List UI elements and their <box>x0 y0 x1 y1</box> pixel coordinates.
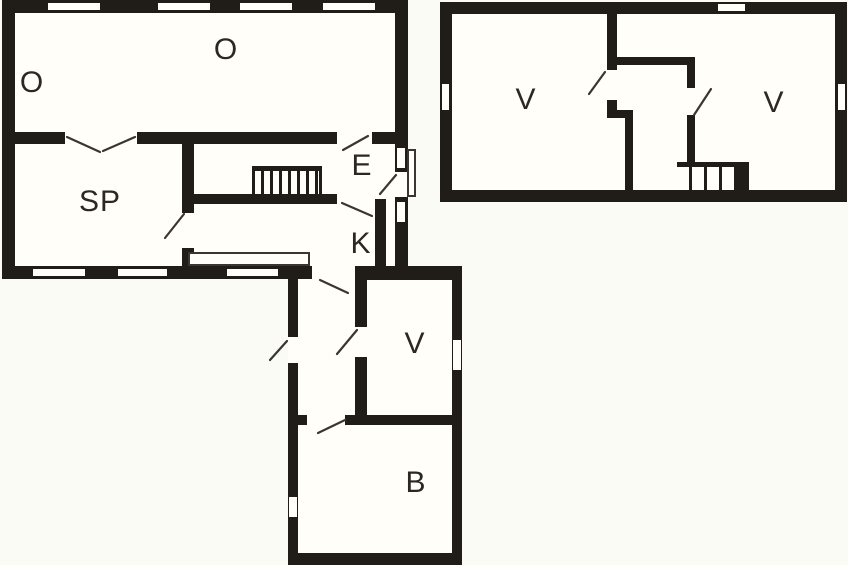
room-label-e: E <box>351 151 372 181</box>
door-opening <box>312 266 355 279</box>
wall <box>440 2 847 14</box>
wall <box>375 199 386 266</box>
wall <box>288 363 298 553</box>
wall <box>345 415 452 425</box>
stairs <box>677 162 737 190</box>
window <box>158 3 210 10</box>
wall <box>687 115 695 162</box>
wall <box>737 162 749 190</box>
wall <box>194 194 337 204</box>
wall <box>2 0 15 279</box>
window <box>323 3 375 10</box>
wall <box>607 110 633 118</box>
upper-floor-interior <box>440 2 847 202</box>
door-opening <box>288 337 298 363</box>
wall <box>288 266 298 337</box>
window <box>838 84 845 110</box>
wall <box>355 266 462 280</box>
room-label-v-ext: V <box>404 329 425 359</box>
kitchen-counter <box>188 252 310 266</box>
wall <box>15 132 65 144</box>
window <box>397 148 405 168</box>
window <box>48 3 100 10</box>
floor-plan-canvas: O O SP E K V B V V <box>0 0 848 565</box>
window <box>453 340 461 370</box>
window <box>397 202 405 222</box>
window <box>227 269 278 276</box>
room-label-sp: SP <box>79 187 121 217</box>
wall <box>137 132 337 144</box>
wall <box>440 190 847 202</box>
wall <box>355 280 367 327</box>
entry-stoop <box>407 149 416 197</box>
room-label-v-upper-left: V <box>515 85 536 115</box>
stairs <box>252 166 322 194</box>
room-label-v-upper-right: V <box>763 88 784 118</box>
window <box>442 84 449 110</box>
room-label-b: B <box>405 468 426 498</box>
room-label-o-left: O <box>20 68 44 98</box>
wall <box>617 57 695 65</box>
wall <box>452 266 462 553</box>
window <box>289 497 297 517</box>
room-label-k: K <box>350 229 371 259</box>
window <box>718 4 745 11</box>
wall <box>372 132 395 144</box>
wall <box>395 0 408 279</box>
wall <box>687 65 695 88</box>
window <box>118 269 167 276</box>
wall <box>625 118 633 190</box>
wall <box>288 553 462 565</box>
door-swing <box>270 341 287 360</box>
window <box>33 269 85 276</box>
wall <box>182 132 194 213</box>
wall <box>298 415 307 425</box>
wall <box>355 357 367 415</box>
window <box>240 3 292 10</box>
room-label-o-main: O <box>214 35 238 65</box>
wall <box>607 14 617 70</box>
